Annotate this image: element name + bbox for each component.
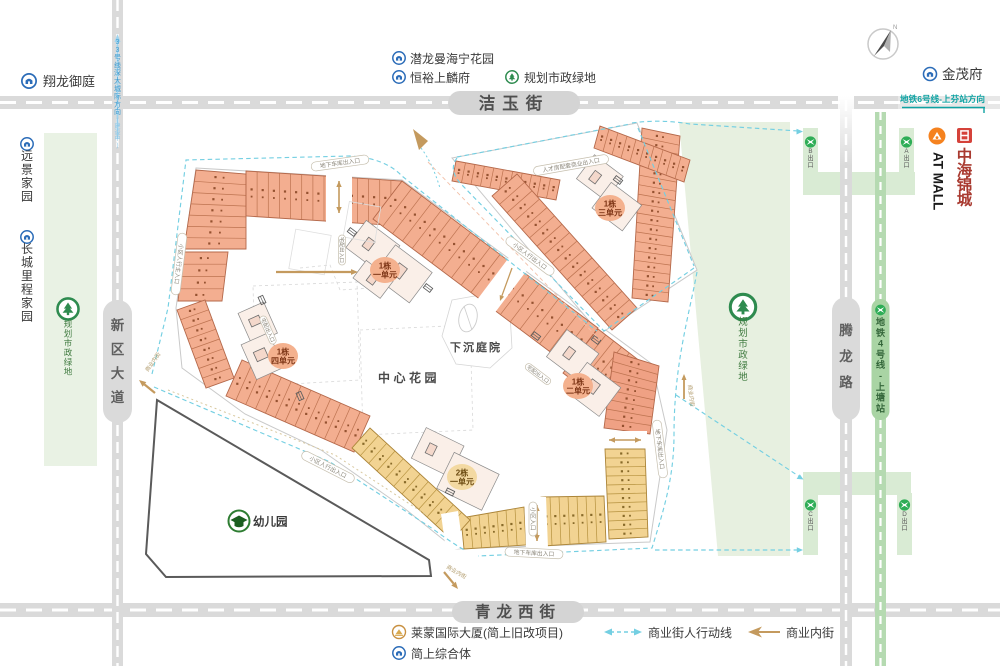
svg-text:家: 家 — [21, 175, 33, 190]
svg-text:际: 际 — [114, 92, 121, 101]
svg-text:D: D — [902, 511, 907, 518]
svg-text:商业内街: 商业内街 — [786, 625, 834, 640]
svg-text:金茂府: 金茂府 — [942, 66, 983, 82]
svg-text:出: 出 — [807, 516, 813, 525]
svg-text:一单元: 一单元 — [373, 270, 397, 280]
svg-text:号: 号 — [114, 54, 121, 62]
svg-text:景: 景 — [21, 163, 33, 177]
svg-text:道: 道 — [111, 389, 125, 405]
svg-text:N: N — [893, 25, 897, 31]
svg-text:规: 规 — [738, 317, 748, 328]
svg-text:程: 程 — [21, 282, 33, 297]
svg-text:宅配出入口: 宅配出入口 — [338, 237, 346, 263]
svg-text:): ) — [117, 143, 119, 149]
svg-text:青龙西街: 青龙西街 — [475, 602, 561, 621]
svg-text:家: 家 — [21, 295, 33, 310]
svg-text:下沉庭院: 下沉庭院 — [450, 340, 502, 354]
svg-text:出: 出 — [807, 153, 813, 162]
svg-text:-: - — [879, 371, 882, 381]
svg-text:划: 划 — [738, 327, 748, 339]
svg-text:C: C — [808, 511, 813, 518]
svg-text:1栋: 1栋 — [379, 261, 391, 271]
svg-text:地: 地 — [738, 371, 748, 383]
svg-text:恒裕上麟府: 恒裕上麟府 — [410, 70, 470, 85]
svg-text:规: 规 — [64, 319, 73, 329]
svg-text:向: 向 — [114, 107, 121, 116]
svg-text:出: 出 — [903, 153, 909, 162]
svg-text:口: 口 — [901, 524, 907, 532]
svg-text:大: 大 — [114, 76, 121, 85]
svg-text:设: 设 — [114, 128, 120, 136]
svg-text:地铁6号线-上芬站方向: 地铁6号线-上芬站方向 — [900, 93, 985, 104]
svg-text:路: 路 — [839, 374, 853, 390]
svg-text:中心花园: 中心花园 — [378, 370, 440, 385]
svg-text:腾: 腾 — [839, 322, 853, 338]
svg-text:政: 政 — [64, 348, 73, 358]
svg-text:二单元: 二单元 — [566, 386, 590, 396]
svg-text:B: B — [808, 148, 812, 155]
svg-text:口: 口 — [807, 161, 813, 169]
svg-text:园: 园 — [21, 190, 33, 204]
svg-text:园: 园 — [21, 310, 33, 324]
svg-text:划: 划 — [64, 329, 73, 339]
svg-text:市: 市 — [738, 338, 748, 350]
svg-text:方: 方 — [114, 99, 121, 108]
svg-text:区: 区 — [111, 342, 125, 357]
svg-text:绿: 绿 — [64, 357, 73, 367]
svg-text:三单元: 三单元 — [598, 208, 622, 218]
svg-text:出: 出 — [901, 516, 907, 525]
svg-text:新: 新 — [111, 317, 125, 333]
svg-text:城: 城 — [957, 191, 973, 209]
svg-text:线: 线 — [876, 359, 886, 370]
svg-text:中: 中 — [114, 135, 120, 143]
svg-text:莱蒙国际大厦(简上旧改项目): 莱蒙国际大厦(简上旧改项目) — [411, 626, 563, 640]
svg-text:1栋: 1栋 — [277, 347, 289, 357]
svg-text:远: 远 — [21, 149, 33, 163]
svg-text:规划市政绿地: 规划市政绿地 — [524, 70, 596, 85]
svg-text:上: 上 — [876, 381, 885, 392]
svg-text:号: 号 — [876, 349, 885, 359]
svg-text:城: 城 — [114, 85, 121, 93]
svg-text:口: 口 — [807, 524, 813, 532]
svg-text:地: 地 — [64, 367, 73, 377]
svg-text:翔龙御庭: 翔龙御庭 — [43, 74, 95, 89]
svg-text:城: 城 — [21, 256, 33, 270]
svg-text:4: 4 — [878, 339, 884, 349]
svg-text:1栋: 1栋 — [572, 377, 584, 387]
svg-text:一单元: 一单元 — [450, 477, 474, 487]
svg-text:里: 里 — [21, 269, 33, 283]
svg-text:建: 建 — [114, 122, 120, 130]
svg-text:3: 3 — [116, 39, 120, 46]
svg-text:铁: 铁 — [876, 327, 886, 338]
svg-text:小区入口: 小区入口 — [529, 507, 537, 530]
svg-text:口: 口 — [903, 161, 909, 169]
svg-text:市: 市 — [64, 338, 73, 348]
svg-text:塘: 塘 — [876, 392, 885, 403]
svg-text:AT MALL: AT MALL — [931, 152, 946, 210]
svg-text:地: 地 — [876, 316, 886, 327]
svg-text:潜龙曼海宁花园: 潜龙曼海宁花园 — [410, 51, 494, 66]
svg-text:幼儿园: 幼儿园 — [253, 515, 288, 529]
svg-text:长: 长 — [21, 242, 33, 256]
svg-text:大: 大 — [111, 365, 125, 381]
svg-text:商业街人行动线: 商业街人行动线 — [648, 625, 732, 640]
svg-text:2栋: 2栋 — [456, 468, 468, 478]
svg-text:龙: 龙 — [838, 348, 853, 364]
svg-text:四单元: 四单元 — [271, 356, 295, 366]
svg-text:(: ( — [117, 118, 119, 124]
svg-text:线: 线 — [114, 60, 121, 69]
svg-text:政: 政 — [738, 349, 748, 361]
svg-text:3: 3 — [116, 47, 120, 54]
svg-text:1栋: 1栋 — [604, 199, 616, 209]
svg-text:简上综合体: 简上综合体 — [411, 646, 471, 661]
svg-text:洁玉街: 洁玉街 — [479, 93, 550, 113]
svg-text:绿: 绿 — [738, 360, 748, 372]
svg-text:深: 深 — [114, 68, 121, 77]
svg-text:站: 站 — [876, 402, 886, 413]
